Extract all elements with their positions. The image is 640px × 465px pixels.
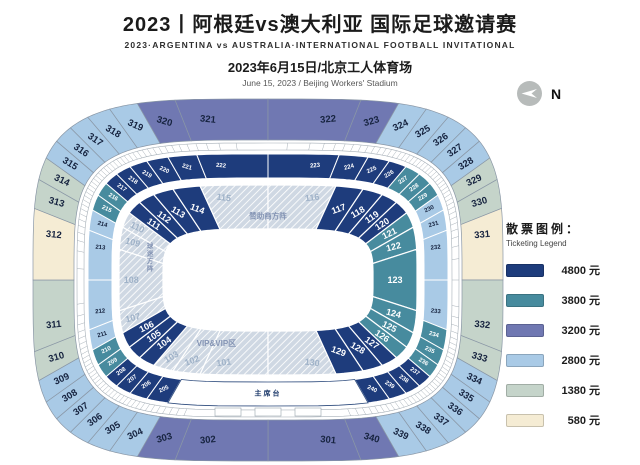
legend-row: 3800 元 [506, 292, 636, 308]
section-label: 101 [216, 357, 232, 369]
section-label: 312 [45, 229, 62, 241]
legend-swatch-1380 [506, 384, 544, 397]
legend-swatch-580 [506, 414, 544, 427]
compass: N [516, 80, 561, 107]
legend-title-cn: 散票图例： [506, 220, 636, 237]
legend-row: 580 元 [506, 412, 636, 428]
legend-swatch-3800 [506, 294, 544, 307]
legend-swatch-3200 [506, 324, 544, 337]
section-label: 322 [320, 113, 337, 125]
section-223[interactable]: 223 [268, 154, 339, 179]
legend-row: 2800 元 [506, 352, 636, 368]
event-title-en: 2023·ARGENTINA vs AUSTRALIA·INTERNATIONA… [0, 40, 640, 50]
section-label: 233 [430, 308, 441, 315]
section-label: 123 [387, 275, 402, 285]
gate-box [215, 408, 241, 416]
ticket-legend: 散票图例： Ticketing Legend 4800 元 3800 元 320… [506, 220, 636, 428]
event-title-cn: 2023丨阿根廷vs澳大利亚 国际足球邀请赛 [0, 8, 640, 37]
legend-row: 1380 元 [506, 382, 636, 398]
section-321[interactable]: 321 [175, 99, 268, 141]
section-label: 116 [304, 192, 320, 204]
header: 2023丨阿根廷vs澳大利亚 国际足球邀请赛 2023·ARGENTINA vs… [0, 8, 640, 88]
section-label: 212 [95, 308, 106, 315]
legend-price: 3800 元 [544, 292, 600, 308]
legend-title-en: Ticketing Legend [506, 239, 636, 248]
event-date-venue-cn: 2023年6月15日/北京工人体育场 [0, 57, 640, 76]
section-label: 301 [320, 434, 338, 447]
stage-box: 主席台 [168, 380, 368, 407]
section-label: 311 [46, 319, 63, 331]
stadium-map: 3013023033043053063073083093103113123133… [28, 88, 508, 465]
section-label: 115 [216, 192, 232, 204]
legend-price: 580 元 [544, 412, 600, 428]
gate-box [295, 408, 321, 416]
legend-row: 3200 元 [506, 322, 636, 338]
section-label: 232 [430, 245, 441, 252]
legend-price: 1380 元 [544, 382, 600, 398]
section-label: 302 [199, 434, 216, 446]
compass-north-label: N [551, 86, 561, 102]
stadium-map-container: 3013023033043053063073083093103113123133… [28, 88, 508, 465]
legend-swatch-4800 [506, 264, 544, 277]
compass-arrow-icon [516, 80, 543, 107]
legend-price: 2800 元 [544, 352, 600, 368]
section-label: 108 [124, 275, 139, 285]
gate-box [255, 408, 281, 416]
section-label: 223 [310, 163, 321, 170]
legend-price: 3200 元 [544, 322, 600, 338]
section-label: 213 [95, 245, 106, 252]
section-222[interactable]: 222 [197, 154, 268, 179]
section-label: 130 [304, 357, 320, 369]
area-label-vertical: 球迷方阵 [146, 241, 154, 273]
area-label: VIP&VIP区 [197, 339, 237, 348]
legend-price: 4800 元 [544, 262, 600, 278]
section-label: 321 [199, 113, 217, 126]
poster: { "header": { "title_cn": "2023丨阿根廷vs澳大利… [0, 0, 640, 465]
legend-swatch-2800 [506, 354, 544, 367]
section-label: 331 [474, 229, 492, 242]
area-label: 赞助商方阵 [248, 210, 287, 220]
legend-row: 4800 元 [506, 262, 636, 278]
section-label: 332 [474, 319, 491, 331]
section-label: 222 [216, 163, 227, 170]
stage-label: 主席台 [255, 389, 282, 398]
